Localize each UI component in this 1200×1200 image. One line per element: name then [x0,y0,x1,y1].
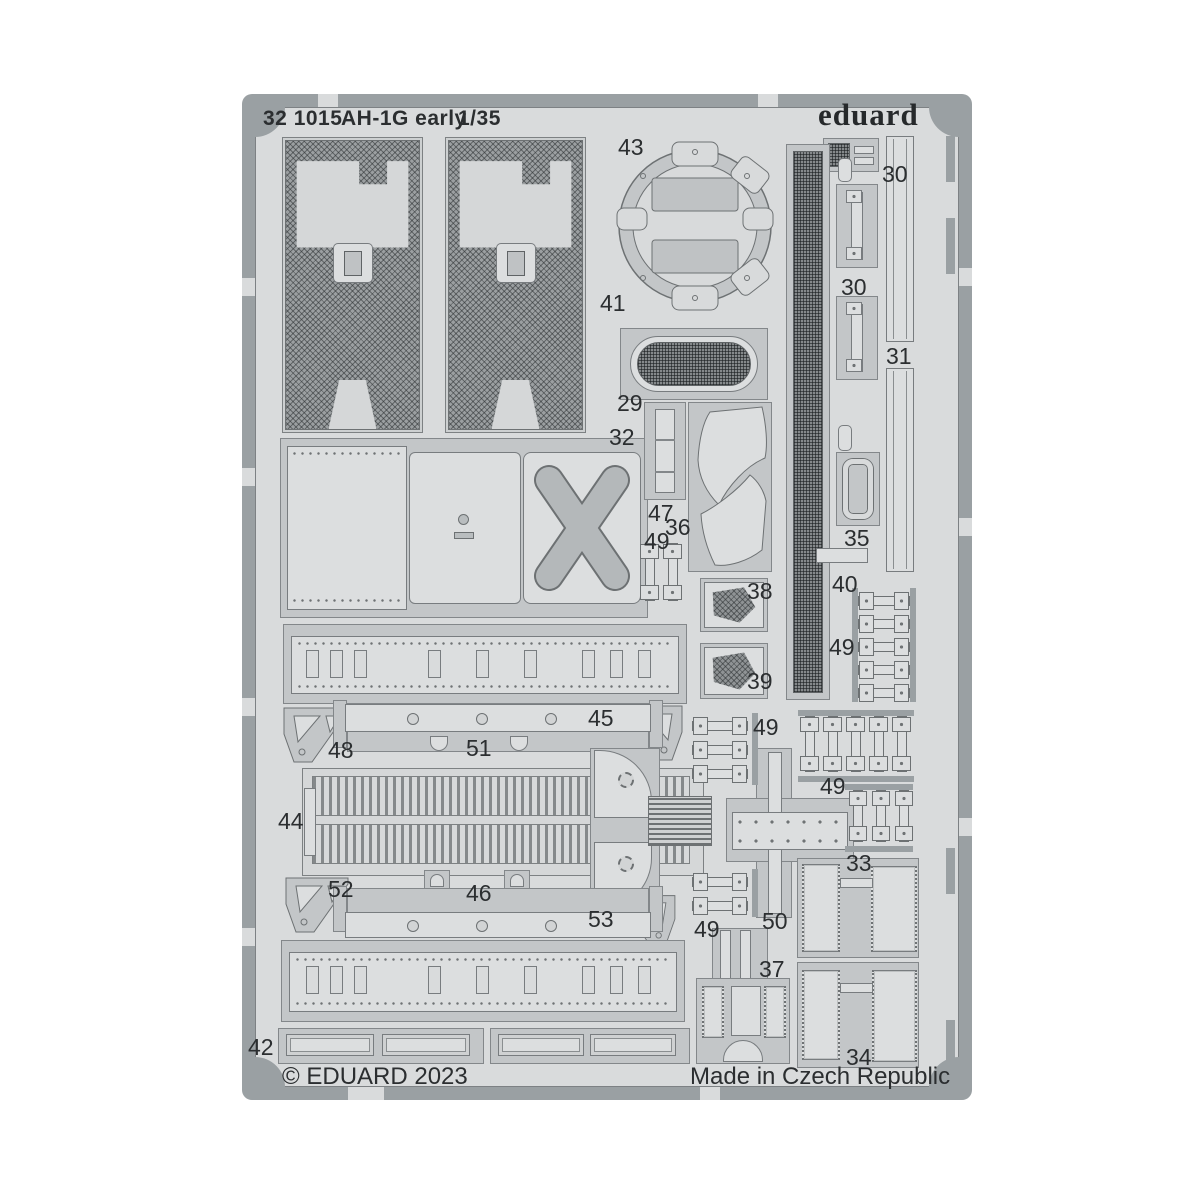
rivet-row [297,641,673,646]
clip-pad [732,741,747,759]
part-34-panel [872,970,917,1062]
gear-wheel [618,856,634,872]
frame-gap [959,818,972,836]
clip-pad [859,684,874,702]
part-42-tray [498,1034,584,1056]
part-30-pad [846,190,862,203]
clip-pad [823,717,842,732]
part-49-clip [823,714,840,774]
part-49-clip [846,714,863,774]
frame-gap [318,94,338,107]
part-51-end [649,700,663,748]
edge-tab [946,848,955,894]
part-label-48: 48 [328,739,354,762]
part-49-clip [856,661,912,677]
clip-pad [849,826,867,841]
edge-tab [946,218,955,274]
part-49-clip [856,684,912,700]
strip-slot [330,650,343,678]
part-49-clip [690,741,750,757]
part-33-panel [802,864,840,952]
frame-gap [758,94,778,107]
part-37-bar [740,930,751,980]
part-label-34: 34 [846,1046,872,1069]
part-label-42: 42 [248,1036,274,1059]
part-label-30: 30 [882,163,908,186]
strip-slot [476,650,489,678]
part-49-clip [849,788,865,844]
part-37-flap [702,986,724,1038]
brand-logo: eduard [818,97,919,133]
part-label-45: 45 [588,707,614,730]
part-label-40: 40 [832,573,858,596]
x-brace [523,452,641,604]
part-label-49: 49 [829,636,855,659]
part-49-clip [690,765,750,781]
clip-pad [693,741,708,759]
part-30-pad [846,302,862,315]
u-notch [510,874,524,887]
panel-slot [454,532,474,539]
part-label-49: 49 [644,530,670,553]
bolt-hole [476,713,488,725]
part-label-52: 52 [328,878,354,901]
gear-wheel [618,772,634,788]
part-44-end-cap [304,788,316,856]
clip-pad [895,826,913,841]
frame-gap [242,468,255,486]
made-in-text: Made in Czech Republic [690,1063,950,1091]
part-49-clip [690,873,750,889]
strip-slot [306,966,319,994]
part-49-clip [856,615,912,631]
part-label-50: 50 [762,910,788,933]
part-30-pad [846,359,862,372]
sprue-rail [752,869,758,917]
part-label-49: 49 [694,918,720,941]
clip-pad [732,897,747,915]
part-label-46: 46 [466,882,492,905]
part-30-pad [846,247,862,260]
clip-pad [846,756,865,771]
mount-slot [507,251,525,276]
strip-slot [428,966,441,994]
part-49-clip [872,788,888,844]
divider-line [655,471,675,473]
strip-slot [610,966,623,994]
clip-pad [872,791,890,806]
part-49-clip [892,714,909,774]
strip-slot [354,966,367,994]
clip-pad [800,717,819,732]
clip-pad [732,717,747,735]
connector-plate [840,983,873,993]
mount-slot [344,251,362,276]
frame-gap [242,278,255,296]
clip-pad [869,717,888,732]
part-42-tray [286,1034,374,1056]
part-49-clip [895,788,911,844]
rivet-row [295,957,671,962]
clip-pad [640,585,659,600]
part-label-31: 31 [886,345,912,368]
clip-pad [663,585,682,600]
strip-slot [582,650,595,678]
part-label-41: 41 [600,292,626,315]
part-label-29: 29 [617,392,643,415]
part-label-39: 39 [747,670,773,693]
clip-pad [732,765,747,783]
clip-pad [894,638,909,656]
strip-lines [893,371,907,569]
part-44-hatch-block [648,796,712,846]
rivet-row [292,598,402,603]
sprue-rail [798,776,914,782]
photo-etch-sheet-photo: 32 1015 AH-1G early 1/35 eduard [0,0,1200,1200]
edge-tab [946,1020,955,1068]
part-46-end [649,886,663,932]
divider-line [655,439,675,441]
frame-gap [242,698,255,716]
part-49-clip [800,714,817,774]
small-bar [854,146,874,154]
part-label-49: 49 [753,716,779,739]
part-label-33: 33 [846,852,872,875]
part-49-clip [690,717,750,733]
part-label-37: 37 [759,958,785,981]
catalog-number: 32 1015 [263,107,342,131]
connector-plate [840,878,873,888]
strip-slot [428,650,441,678]
part-label-44: 44 [278,810,304,833]
clip-pad [895,791,913,806]
part-33-panel [871,866,917,952]
part-49-clip [856,592,912,608]
part-37-center [731,986,761,1036]
strip-slot [524,650,537,678]
clip-pad [894,592,909,610]
clip-pad [849,791,867,806]
part-49-clip [690,897,750,913]
frame-gap [242,928,255,946]
bolt-hole [545,920,557,932]
part-label-49: 49 [820,775,846,798]
clip-pad [732,873,747,891]
u-notch [430,874,444,887]
part-label-30: 30 [841,276,867,299]
strip-slot [330,966,343,994]
clip-pad [894,615,909,633]
strip-slot [638,966,651,994]
bolt-hole [545,713,557,725]
panel-hole [458,514,469,525]
clip-pad [869,756,888,771]
part-29-mesh-grille [637,342,751,386]
clip-pad [859,615,874,633]
clip-pad [892,756,911,771]
part-label-51: 51 [466,737,492,760]
part-42-tray [382,1034,470,1056]
rivet-row [297,684,673,689]
part-49-clip [856,638,912,654]
bolt-hole [407,713,419,725]
kit-name: AH-1G early [341,107,467,131]
part-31-strip [886,368,914,572]
part-32-riveted-panel [287,446,407,610]
rivet-row [295,1001,671,1006]
part-47-bar [655,409,675,493]
clip-pad [693,765,708,783]
copyright-text: © EDUARD 2023 [282,1063,468,1091]
part-49-clip [869,714,886,774]
part-label-53: 53 [588,908,614,931]
strip-slot [524,966,537,994]
part-41-mesh-panel [448,140,583,430]
clip-pad [892,717,911,732]
small-bar [854,157,874,165]
clip-pad [693,897,708,915]
strip-slot [476,966,489,994]
part-35-ring [843,459,873,519]
frame-gap [959,518,972,536]
part-50-plate [732,812,848,850]
clip-pad [859,592,874,610]
part-36-shapes [688,402,772,572]
clip-pad [693,717,708,735]
bolt-hole [476,920,488,932]
part-43-circular-panel [615,138,775,318]
clip-pad [859,638,874,656]
clip-pad [894,661,909,679]
part-40-mesh-strip [793,151,823,693]
clip-pad [800,756,819,771]
clip-pad [823,756,842,771]
part-37-flap [764,986,786,1038]
strip-slot [638,650,651,678]
clip-pad [693,873,708,891]
strip-slot [306,650,319,678]
bolt-hole [407,920,419,932]
part-42-tray [590,1034,676,1056]
clip-pad [859,661,874,679]
clip-pad [872,826,890,841]
clip-pad [894,684,909,702]
part-37-bar [720,930,731,980]
rivet-row [292,451,402,456]
edge-tab [946,136,955,182]
frame-gap [959,268,972,286]
part-label-32: 32 [609,426,635,449]
part-label-38: 38 [747,580,773,603]
clip-pad [846,717,865,732]
strip-slot [354,650,367,678]
part-41-mesh-panel [285,140,420,430]
small-link-part [838,158,852,182]
strip-slot [610,650,623,678]
strip-slot [582,966,595,994]
part-label-43: 43 [618,136,644,159]
part-34-panel [802,970,840,1060]
part-32-plain-panel [409,452,521,604]
part-label-35: 35 [844,527,870,550]
scale: 1/35 [458,107,501,131]
small-link-part [838,425,852,451]
